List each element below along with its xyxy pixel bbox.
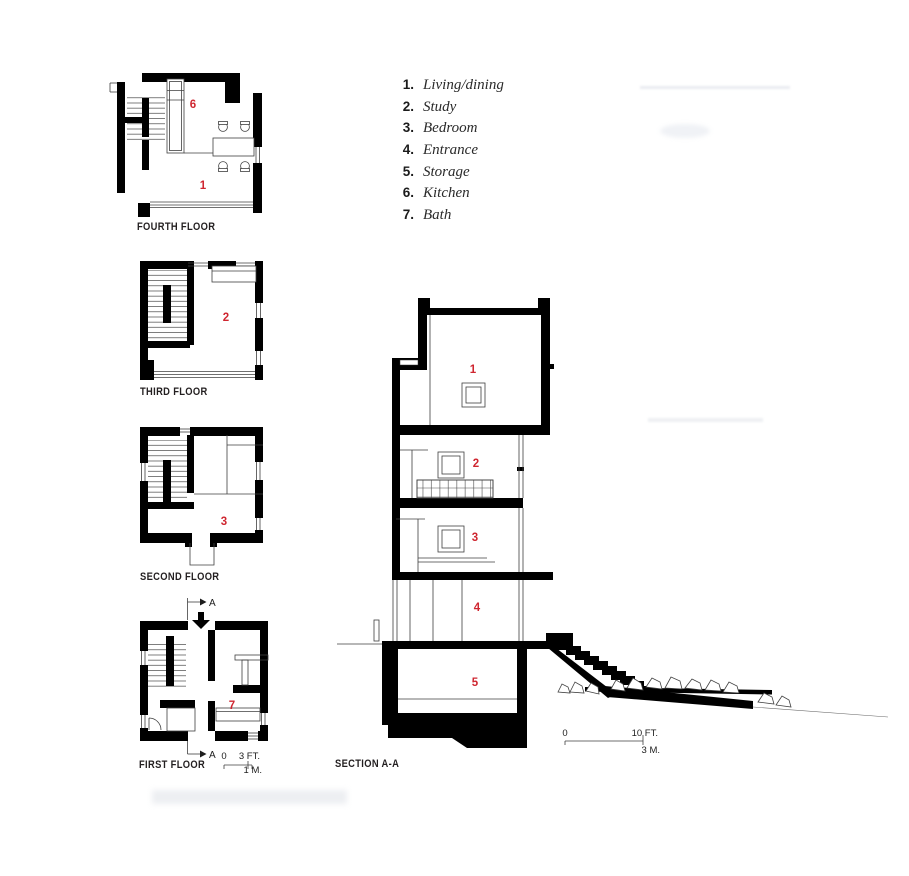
legend-item: 6. Kitchen [396, 185, 504, 207]
entrance-arrow-icon [192, 612, 210, 629]
fourth-floor-plan: 6 1 [108, 66, 270, 218]
scale-imperial: 3 FT. [239, 751, 260, 762]
legend-number: 1. [396, 77, 414, 92]
legend-label: Bath [423, 207, 451, 224]
room-number-bath: 7 [229, 700, 235, 712]
section-cut-line-bottom [188, 741, 201, 754]
section-room-3: 3 [472, 532, 478, 544]
fourth-floor-label: FOURTH FLOOR [137, 221, 215, 233]
bath-fixture [242, 660, 248, 685]
recessed-window-slot [400, 360, 418, 365]
section-drawing: 1 2 3 4 5 0 10 FT. 3 M. [330, 290, 890, 770]
closet [167, 708, 195, 731]
section-scale-bar: 0 10 FT. 3 M. [562, 728, 660, 756]
faint-artifact [660, 124, 710, 138]
faint-artifact [152, 790, 347, 804]
legend-number: 7. [396, 207, 414, 222]
second-floor-plan: 3 [136, 424, 270, 576]
room-number-living: 1 [200, 180, 207, 192]
scale-zero: 0 [221, 751, 226, 762]
scale-zero: 0 [562, 728, 567, 739]
section-room-2: 2 [473, 458, 479, 470]
hill-stair [546, 633, 772, 709]
bath-tub [216, 708, 260, 721]
scale-imperial: 10 FT. [632, 728, 658, 739]
legend-label: Bedroom [423, 120, 477, 137]
second-floor-label: SECOND FLOOR [140, 571, 219, 583]
section-cut-label-bottom: A [209, 750, 216, 761]
room-number-bedroom: 3 [221, 516, 227, 528]
legend-label: Entrance [423, 142, 478, 159]
first-floor-label: FIRST FLOOR [139, 759, 205, 771]
architectural-drawing-page: 6 1 FOURTH FLOOR 2 [0, 0, 909, 876]
legend-label: Study [423, 99, 456, 116]
ground-line-right [753, 707, 888, 717]
legend-number: 6. [396, 185, 414, 200]
section-cut-label-top: A [209, 598, 216, 609]
legend-item: 7. Bath [396, 207, 504, 229]
legend-number: 3. [396, 120, 414, 135]
section-cut-arrow-icon [200, 599, 207, 606]
room-number-study: 2 [223, 312, 229, 324]
third-floor-plan: 2 [136, 254, 270, 406]
room-number-kitchen: 6 [190, 99, 196, 111]
first-floor-plan: A [134, 592, 276, 784]
faint-artifact [640, 86, 790, 89]
legend-number: 4. [396, 142, 414, 157]
legend-item: 2. Study [396, 99, 504, 121]
door-swing-arc [149, 718, 161, 730]
legend-item: 3. Bedroom [396, 120, 504, 142]
plan-scale-bar: 0 3 FT. 1 M. [221, 751, 262, 776]
legend-item: 4. Entrance [396, 142, 504, 164]
shelf-grid [417, 480, 493, 498]
third-floor-label: THIRD FLOOR [140, 386, 208, 398]
scale-metric: 1 M. [244, 765, 262, 776]
section-label: SECTION A-A [335, 758, 399, 770]
legend-label: Kitchen [423, 185, 470, 202]
section-cut-arrow-icon [200, 751, 207, 758]
scale-metric: 3 M. [642, 745, 660, 756]
closet [212, 266, 256, 282]
room-legend: 1. Living/dining 2. Study 3. Bedroom 4. … [396, 77, 504, 229]
legend-label: Living/dining [423, 77, 504, 94]
section-room-5: 5 [472, 677, 479, 689]
dining-table-and-chairs [213, 122, 254, 172]
legend-number: 2. [396, 99, 414, 114]
legend-item: 1. Living/dining [396, 77, 504, 99]
section-room-1: 1 [470, 364, 477, 376]
legend-label: Storage [423, 164, 470, 181]
legend-item: 5. Storage [396, 164, 504, 186]
section-room-4: 4 [474, 602, 481, 614]
post [374, 620, 379, 641]
legend-number: 5. [396, 164, 414, 179]
